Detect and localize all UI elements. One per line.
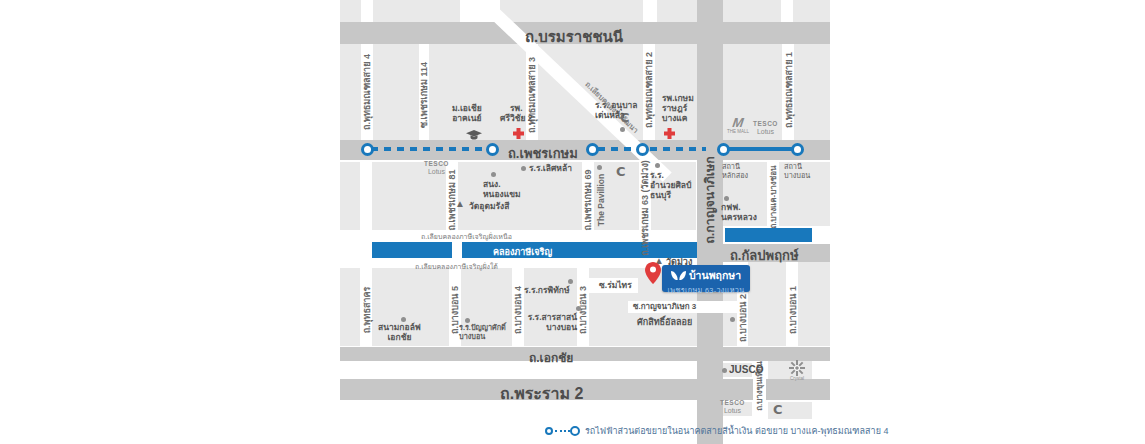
location-map: คลองภาษีเจริญ ถ.เลียบคลองภาษีเจริญฝั่งเห… (0, 0, 1145, 444)
hospital-cross-icon (513, 128, 524, 139)
poi-dot (620, 127, 625, 132)
crystal-logo: Crystal (789, 360, 805, 381)
poi-the-pavillion: The Pavillion (596, 174, 606, 226)
poi-asia-university: ม.เอเชีย อาคเนย์ (452, 103, 482, 123)
big-c-logo: C (773, 402, 783, 417)
poi-mea-office: กฟฟ. นครหลวง (721, 202, 757, 222)
city-block (723, 0, 781, 22)
road-label-kanlapaphruek: ถ.กัลปพฤกษ์ (730, 245, 798, 266)
mrt-station-node (636, 143, 649, 156)
road-label-rama2: ถ.พระราม 2 (500, 381, 583, 406)
poi-dot (491, 172, 496, 177)
grad-cap-icon (466, 130, 482, 141)
temple-icon: ▲ (455, 199, 465, 209)
poi-srivichai2-hospital: รพ. ศรีวิชัย 2 (500, 103, 533, 123)
legend-mrt-node-icon (570, 426, 580, 436)
phasi-charoen-canal (725, 228, 812, 242)
mrt-station-node (791, 143, 804, 156)
mrt-dashed-line (598, 147, 706, 151)
city-block (748, 262, 786, 346)
mrt-station-node (361, 143, 374, 156)
city-block (340, 162, 360, 230)
phasi-charoen-canal (372, 242, 452, 258)
poi-ekachai-golf: สนามกอล์ฟ เอกชัย (378, 322, 421, 342)
big-c-logo: C (616, 164, 626, 179)
mrt-solid-line (723, 147, 797, 151)
city-block (657, 0, 697, 22)
project-badge: บ้านพฤกษา เพชรเกษม 63-วงแหวน (662, 265, 750, 292)
city-block (340, 44, 361, 140)
poi-nongkhaem-office: สนง. หนองแขม (483, 179, 521, 199)
canal-north-bank-road-label: ถ.เลียบคลองภาษีเจริญฝั่งเหนือ (421, 231, 512, 242)
road-label-soi-kanchanaphisek3: ซ.กาญจนาภิเษก 3 (633, 302, 696, 312)
road-label-phetkasem: ถ.เพชรเกษม (508, 143, 578, 164)
poi-saksit-alloy: ศักสิทธิ์อัลลอย (637, 317, 692, 328)
city-block (429, 44, 526, 140)
poi-dot (722, 368, 727, 373)
road-label-bangbon2: ถ.บางบอน 2 (736, 294, 750, 342)
road-label-phetkasem114: ซ.เพชรเกษม 114 (417, 62, 431, 128)
poi-kornpitack-school: ร.ร.กรพิทักษ์ (524, 285, 570, 295)
road-label-phetkasem69: ถ.เพชรเกษม 69 (581, 170, 595, 231)
mrt-station-node (586, 143, 599, 156)
city-block (340, 0, 361, 22)
mrt-dashed-line (371, 147, 491, 151)
road-label-phutthamonthon2: ถ.พุทธมณฑลสาย 2 (642, 52, 656, 128)
poi-dot (724, 196, 729, 201)
mrt-station-node (717, 143, 730, 156)
poi-lak-song-station: สถานี หลักสอง (722, 162, 748, 180)
poi-dot (568, 279, 573, 284)
city-block (794, 44, 830, 140)
poi-dot (655, 163, 660, 168)
the-mall-logo: M THE MALL (727, 116, 749, 134)
road-label-bangbon1: ถ.บางบอน 1 (786, 286, 800, 334)
poi-kasemrad-bangkhae-hospital: รพ.เกษม ราษฎร์ บางแค (662, 93, 694, 124)
poi-panyasak-school: ร.ร.ปัญญาศักดิ์ บางบอน (459, 323, 506, 341)
city-block (340, 268, 360, 346)
poi-lertlah-school: ร.ร.เลิศหล้า (529, 163, 572, 173)
legend-mrt-node-icon (545, 427, 553, 435)
project-name: บ้านพฤกษา (689, 267, 741, 284)
jusco-logo: JUSCO (729, 364, 763, 376)
canal-name-label: คลองภาษีเจริญ (493, 245, 552, 259)
road-label-phutthamonthon1: ถ.พุทธมณฑลสาย 1 (782, 52, 796, 128)
city-block (373, 44, 419, 140)
canal-south-bank-road-label: ถ.เลียบคลองภาษีเจริญฝั่งใต้ (415, 261, 498, 272)
location-pin-icon (645, 262, 661, 284)
legend-mrt-dash-icon (555, 430, 570, 432)
road-label-phutthamonthon4: ถ.พุทธมณฑลสาย 4 (360, 54, 374, 130)
road-label-kanchanaphisek: ถ.กาญจนาภิเษก (700, 156, 720, 244)
pruksa-logo-icon (671, 270, 686, 281)
hospital-cross-icon (664, 128, 675, 139)
city-block (500, 0, 643, 22)
project-subtitle: เพชรเกษม 63-วงแหวน (662, 285, 750, 296)
city-block (655, 44, 697, 140)
road-label-soi-romsai: ซ.ร่มไทร (599, 280, 632, 290)
tesco-lotus-logo: TESCO Lotus (753, 121, 778, 135)
poi-wat-udomrangsi: วัดอุดมรังสี (469, 201, 509, 211)
road-ekkachai (340, 347, 830, 361)
road-label-bangbon4: ถ.บางบอน 4 (511, 286, 525, 334)
road-label-ekkachai: ถ.เอกชัย (529, 348, 573, 367)
poi-dot (730, 317, 735, 322)
poi-dot (597, 165, 602, 170)
legend-text: รถไฟฟ้าส่วนต่อขยายในอนาคตสายสีน้ำเงิน ต่… (585, 424, 888, 438)
poi-amnuaysilpa-school: ร.ร. อำนวยศิลป์ ธนบุรี (650, 170, 691, 201)
road-label-bangkhae-bangchon: ถ.บางแค-บางช่อน (767, 166, 780, 229)
tesco-lotus-logo: TESCO Lotus (424, 161, 449, 175)
poi-denla-kindergarten: ร.ร. อนุบาล เด่นหล้า (595, 100, 638, 120)
road-label-borommaratchachonnani: ถ.บรมราชชนนี (525, 25, 623, 49)
city-block (373, 0, 460, 22)
road-label-phutthasakhon: ถ.พุทธสาคร (360, 287, 374, 334)
poi-bang-bon-station: สถานี บางบอน (784, 162, 810, 180)
mrt-station-node (486, 143, 499, 156)
poi-dot (521, 166, 526, 171)
city-block (793, 0, 830, 22)
poi-sarasas-bangbon-school: ร.ร.สารสาสน์ บางบอน (527, 312, 577, 332)
city-block (798, 262, 830, 346)
poi-dot (576, 306, 581, 311)
tesco-lotus-logo: TESCO Lotus (720, 400, 745, 414)
